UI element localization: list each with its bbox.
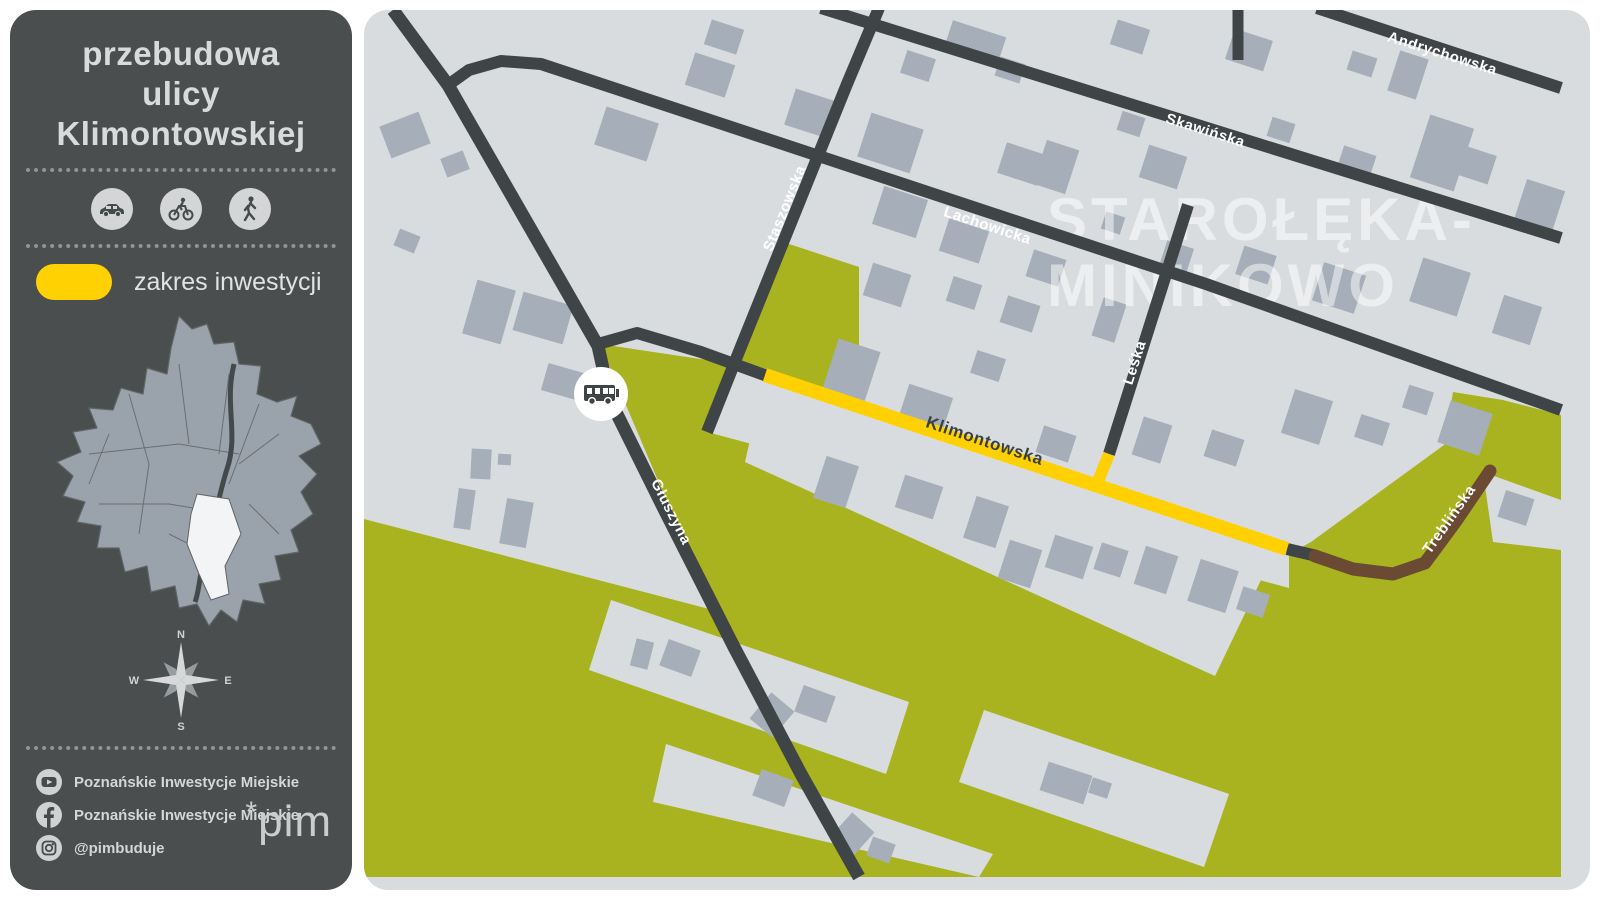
- city-districts-map: [29, 304, 333, 634]
- investment-scope-swatch: [36, 264, 112, 300]
- map-canvas: STAROŁĘKA-MINIKOWOGłuszynaLachowickaSkaw…: [364, 10, 1590, 890]
- building: [857, 113, 924, 174]
- poster: przebudowa ulicy Klimontowskiej: [0, 0, 1600, 900]
- building: [453, 488, 475, 530]
- building: [1387, 50, 1429, 99]
- bicycle-icon: [160, 188, 202, 230]
- car-icon: [91, 188, 133, 230]
- sidebar: przebudowa ulicy Klimontowskiej: [10, 10, 352, 890]
- compass-s: S: [177, 721, 184, 732]
- building: [1266, 117, 1295, 143]
- building: [462, 280, 516, 345]
- building: [470, 448, 492, 479]
- building: [1139, 145, 1188, 190]
- title-line-2: ulicy: [56, 74, 305, 114]
- building: [1347, 50, 1378, 77]
- building: [970, 350, 1006, 382]
- building: [499, 498, 534, 548]
- building: [440, 150, 470, 177]
- building: [1225, 29, 1273, 72]
- building: [498, 454, 512, 466]
- investment-scope-label: zakres inwestycji: [134, 268, 322, 297]
- youtube-icon: [36, 769, 62, 795]
- building: [1402, 385, 1434, 416]
- building: [1110, 19, 1150, 54]
- youtube-row: Poznańskie Inwestycje Miejskie: [36, 769, 336, 795]
- building: [1132, 416, 1173, 463]
- dotted-divider: [26, 746, 336, 750]
- dotted-divider: [26, 168, 336, 172]
- building: [1354, 414, 1390, 446]
- youtube-label: Poznańskie Inwestycje Miejskie: [74, 774, 299, 791]
- facebook-icon: [36, 802, 62, 828]
- title-line-1: przebudowa: [56, 34, 305, 74]
- investment-map: STAROŁĘKA-MINIKOWOGłuszynaLachowickaSkaw…: [364, 10, 1590, 890]
- building: [900, 50, 936, 82]
- building: [685, 52, 735, 97]
- compass-w: W: [129, 675, 140, 687]
- building: [594, 106, 659, 161]
- building: [393, 229, 420, 254]
- building: [1409, 257, 1471, 316]
- building: [1492, 295, 1542, 345]
- building: [1116, 111, 1145, 137]
- instagram-icon: [36, 835, 62, 861]
- building: [863, 263, 912, 308]
- building: [1281, 389, 1333, 445]
- building: [946, 276, 983, 310]
- poster-title: przebudowa ulicy Klimontowskiej: [56, 34, 305, 154]
- pim-logo: *pim: [245, 796, 332, 847]
- building: [1000, 295, 1041, 332]
- social-links: Poznańskie Inwestycje Miejskie Poznański…: [26, 762, 336, 868]
- street-label-leska: Leśka: [1120, 338, 1150, 387]
- pedestrian-icon: [229, 188, 271, 230]
- building: [704, 19, 744, 54]
- transport-modes: [91, 188, 271, 230]
- legend: zakres inwestycji: [26, 264, 336, 300]
- building: [1204, 429, 1245, 466]
- compass-e: E: [224, 675, 231, 687]
- building: [379, 112, 430, 159]
- street-label-skawinska: Skawińska: [1164, 110, 1247, 151]
- compass-rose: N E S W: [126, 628, 236, 732]
- pim-logo-asterisk: *: [245, 796, 258, 829]
- instagram-label: @pimbuduje: [74, 840, 164, 857]
- title-line-3: Klimontowskiej: [56, 114, 305, 154]
- dotted-divider: [26, 244, 336, 248]
- compass-n: N: [177, 629, 185, 641]
- pim-logo-text: pim: [258, 797, 332, 846]
- green-area: [1289, 392, 1561, 877]
